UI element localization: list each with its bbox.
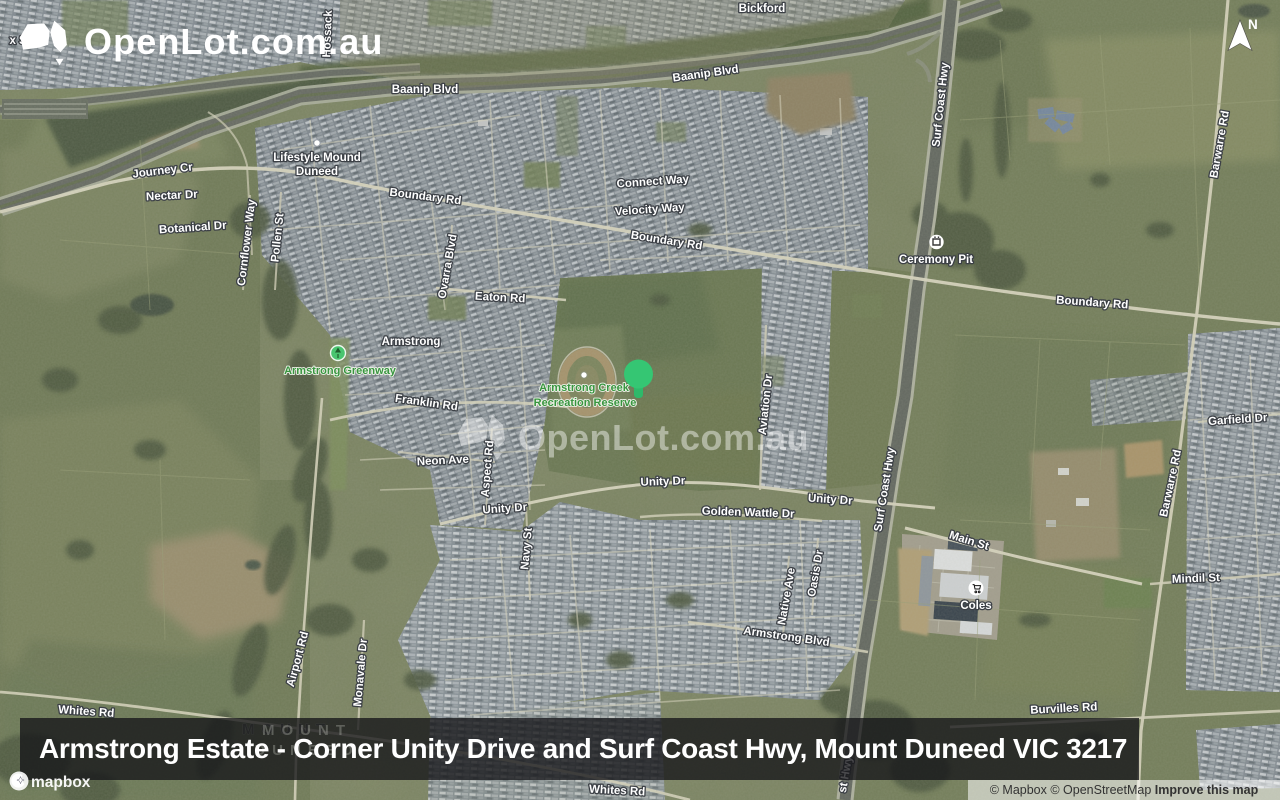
svg-text:Baanip Blvd: Baanip Blvd [392,84,458,96]
svg-text:OpenLot.com.au: OpenLot.com.au [518,417,809,458]
svg-text:Lifestyle Mound: Lifestyle Mound [273,152,361,164]
svg-text:Armstrong: Armstrong [382,336,441,348]
svg-text:Armstrong Greenway: Armstrong Greenway [284,365,397,377]
svg-text:Duneed: Duneed [296,166,338,178]
svg-text:Unity Dr: Unity Dr [640,475,686,489]
svg-text:Bickford: Bickford [739,3,786,15]
svg-text:Mindil St: Mindil St [1172,572,1220,586]
svg-text:N: N [1248,17,1258,32]
svg-text:mapbox: mapbox [31,774,91,791]
svg-text:Ceremony Pit: Ceremony Pit [899,254,973,266]
svg-text:Armstrong Creek: Armstrong Creek [539,382,630,394]
svg-text:OpenLot.com.au: OpenLot.com.au [84,21,383,62]
svg-text:Coles: Coles [960,600,991,612]
